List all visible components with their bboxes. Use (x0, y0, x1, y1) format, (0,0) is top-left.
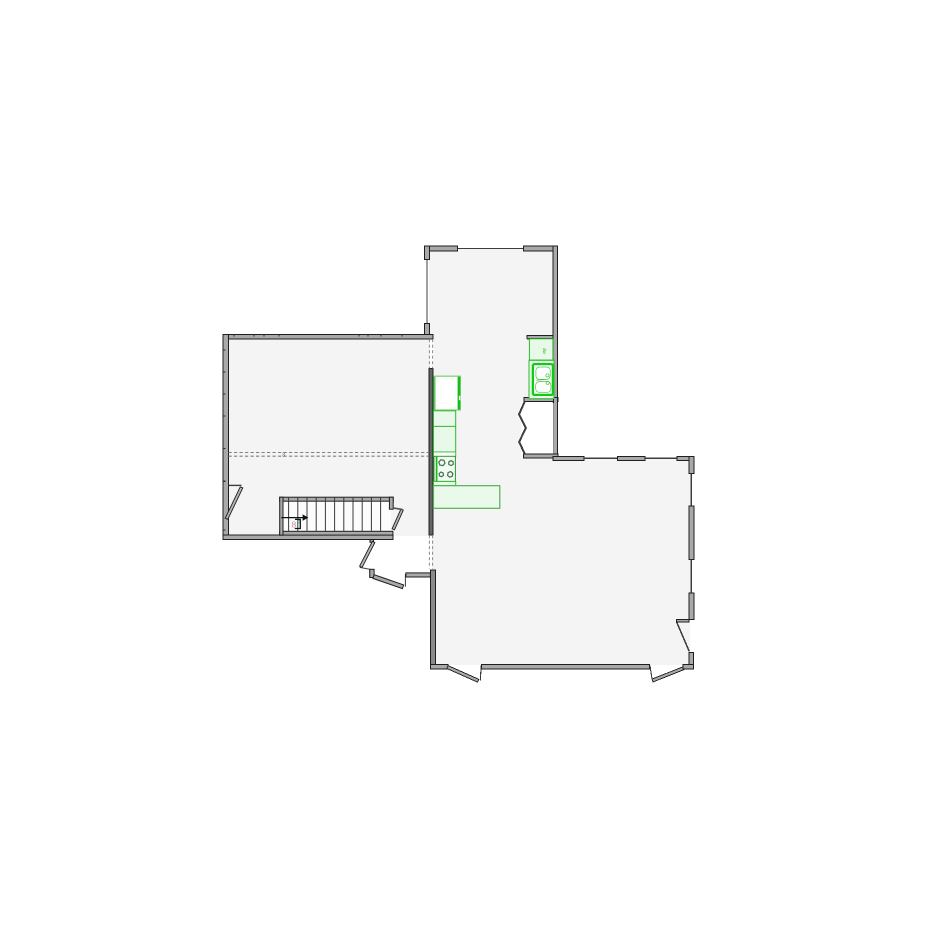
svg-text:3: 3 (282, 453, 285, 459)
svg-text:dw: dw (542, 348, 547, 355)
